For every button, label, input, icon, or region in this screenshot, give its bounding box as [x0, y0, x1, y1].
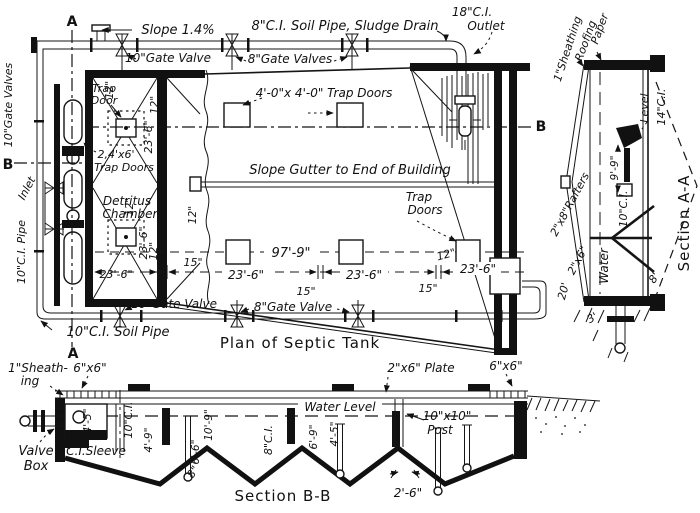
- bb-dim-4-5-right: 4'-5": [329, 422, 341, 447]
- dim-23-6: 23'-6": [346, 268, 382, 282]
- vent-stub: [92, 25, 110, 41]
- trap-doors-right-label-1: Trap: [406, 190, 433, 204]
- soil-pipe-bottom-label: 10"C.I. Soil Pipe: [66, 325, 169, 340]
- dim-23-6-vert: 23'-6": [142, 120, 155, 153]
- dim-23-6: 23'-6": [460, 262, 496, 276]
- bb-dim-6-6: 6'-6": [190, 440, 202, 465]
- plan-title: Plan of Septic Tank: [220, 334, 380, 352]
- aa-10ci-label: 10"C.I.: [617, 191, 630, 228]
- dim-15: 15": [296, 285, 315, 298]
- dim-12: 12": [148, 242, 160, 260]
- bb-plate-label: 2"x6" Plate: [387, 361, 454, 375]
- bb-valve-box-label-2: Box: [24, 459, 49, 474]
- bb-6x6-left-label: 6"x6": [73, 361, 106, 375]
- dim-23-6: 23'-6": [99, 268, 132, 281]
- section-aa: 1"Sheathing Roofing Paper 2"x8"Rafters 2…: [548, 10, 697, 362]
- bb-ci-sleeve-label: C.I.Sleeve: [66, 444, 126, 458]
- cut-label-a-bottom: A: [68, 346, 79, 362]
- trap-doors-2x-label-1: 2,4'x6': [97, 148, 134, 161]
- bb-post-label-1: 10"x10": [423, 409, 472, 423]
- gate-valve-10-top-label: 10"Gate Valve: [125, 51, 211, 65]
- gate-valve-8-bottom-label: 8"Gate Valve: [254, 300, 332, 314]
- trap-doors-4x4-label: 4'-0"x 4'-0" Trap Doors: [256, 86, 393, 100]
- plan-view: A A B B Slope 1.4% 8"C.I. Soil Pipe, Slu…: [2, 5, 546, 362]
- bb-post-label-2: Post: [427, 423, 454, 437]
- left-gate-valves-label: 10"Gate Valves: [2, 62, 15, 147]
- cut-label-b-left: B: [3, 157, 14, 173]
- cut-label-a-top: A: [67, 14, 78, 30]
- gutter-label: Slope Gutter to End of Building: [249, 163, 451, 178]
- section-bb-title: Section B-B: [235, 487, 332, 505]
- bb-dim-6-9: 6'-9": [308, 425, 320, 450]
- dim-12: 12": [435, 246, 457, 263]
- section-bb: 1"Sheath- ing 6"x6" 2"x6" Plate 6"x6" Va…: [8, 359, 600, 505]
- bb-6x6-right-label: 6"x6": [489, 359, 522, 373]
- left-pipe-label: 10"C.I. Pipe: [15, 220, 28, 284]
- inlet-label: Inlet: [15, 174, 38, 202]
- valve-icon: [226, 34, 238, 70]
- inlet-works: [45, 100, 84, 284]
- bb-hopper-bottoms: [65, 448, 514, 484]
- dim-12: 12": [124, 198, 136, 216]
- gate-valves-8-top-label: 8"Gate Valves: [248, 52, 333, 66]
- section-aa-title: Section A-A: [675, 175, 693, 272]
- outlet-label-1: 18"C.I.: [452, 5, 492, 19]
- drawing-canvas: A A B B Slope 1.4% 8"C.I. Soil Pipe, Slu…: [0, 0, 700, 513]
- bb-dim-10-9: 10'-9": [203, 409, 215, 441]
- aa-dim-3ft: 3': [585, 310, 600, 326]
- dim-15: 15": [418, 282, 437, 295]
- outlet-label-2: Outlet: [467, 19, 505, 33]
- bb-valve-box-label-1: Valve: [18, 444, 53, 459]
- dim-97-9: 97'-9": [271, 246, 310, 261]
- dim-12: 12": [104, 81, 116, 99]
- septic-tank-drawing: A A B B Slope 1.4% 8"C.I. Soil Pipe, Slu…: [0, 0, 700, 513]
- bb-water-level-label: Water Level: [304, 400, 376, 414]
- bb-dim-4-5: 4'-5": [82, 409, 94, 434]
- aa-2x6-label: 2"x6": [565, 244, 591, 277]
- trap-doors-2x-label-2: Trap Doors: [94, 161, 154, 174]
- aa-level-label: Level: [638, 93, 651, 122]
- dim-23-6: 23'-6": [228, 268, 264, 282]
- aa-dim-9-9: 9'-9": [609, 156, 621, 181]
- bb-dim-4-9: 4'-9": [143, 428, 155, 453]
- bb-sheathing-label-1: 1"Sheath-: [8, 361, 68, 375]
- chamber-braces: [93, 70, 452, 299]
- dim-15: 15": [183, 256, 202, 269]
- dim-12: 12": [187, 206, 199, 224]
- bb-dim-2-6: 2'-6": [394, 486, 422, 500]
- valve-icon: [346, 34, 358, 70]
- gate-valve-10-bottom-label: 10"Gate Valve: [131, 297, 217, 311]
- bb-sheathing-label-2: ing: [21, 374, 40, 388]
- aa-water-label: Water: [597, 247, 611, 284]
- trap-doors-right-label-2: Doors: [407, 203, 442, 217]
- dim-12: 12": [149, 96, 161, 114]
- bb-ground: [527, 396, 600, 435]
- bb-8ci-label: 8"C.I.: [262, 425, 275, 455]
- soil-pipe-top-label: 8"C.I. Soil Pipe, Sludge Drain: [252, 19, 439, 34]
- aa-20ft-label: 20': [555, 281, 572, 301]
- cut-label-b-right: B: [536, 119, 547, 135]
- slope-label: Slope 1.4%: [141, 23, 214, 38]
- bb-10ci-label: 10"C.I.: [122, 402, 135, 439]
- aa-14ci-label: 14"C.I.: [655, 89, 668, 126]
